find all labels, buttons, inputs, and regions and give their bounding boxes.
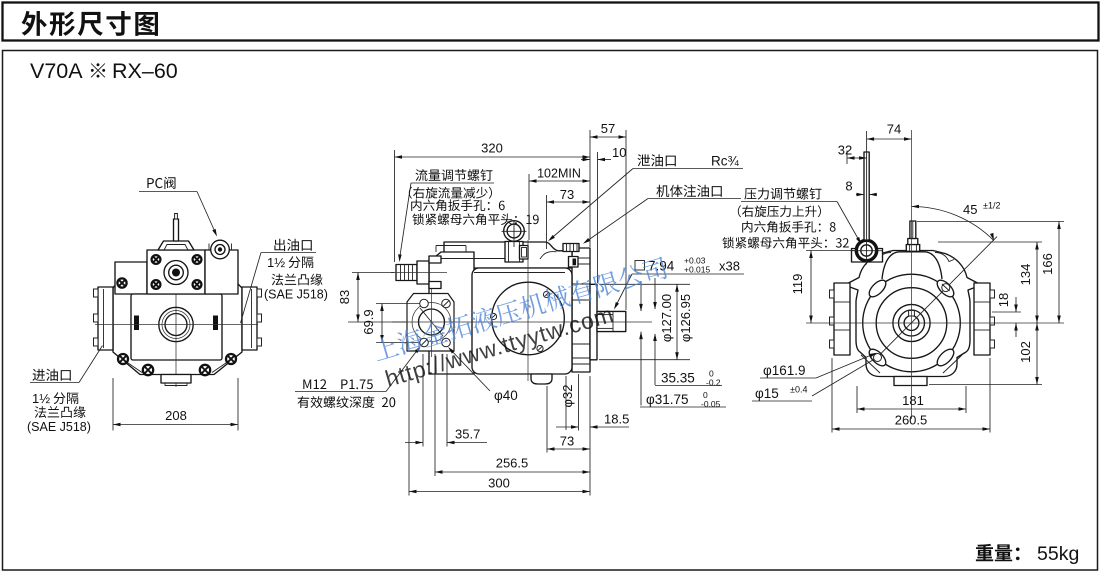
svg-text:320: 320 [481, 141, 503, 156]
svg-text:74: 74 [887, 122, 901, 137]
svg-text:±1/2: ±1/2 [983, 201, 1000, 211]
svg-text:57: 57 [601, 121, 615, 136]
svg-text:-0.2: -0.2 [706, 378, 721, 388]
svg-text:10: 10 [612, 145, 626, 160]
svg-text:φ40: φ40 [494, 388, 518, 403]
svg-text:18.5: 18.5 [604, 412, 629, 427]
svg-text:(SAE J518): (SAE J518) [27, 420, 91, 434]
svg-text:φ31.75: φ31.75 [646, 392, 689, 407]
svg-text:208: 208 [165, 408, 187, 423]
svg-text:83: 83 [337, 290, 352, 304]
svg-text:35.35: 35.35 [661, 371, 695, 386]
svg-text:55kg: 55kg [1037, 543, 1079, 565]
svg-text:73: 73 [560, 187, 574, 202]
svg-text:73: 73 [560, 434, 574, 449]
svg-text:φ161.9: φ161.9 [763, 363, 806, 378]
svg-text:69.9: 69.9 [361, 309, 376, 334]
svg-text:300: 300 [488, 476, 510, 491]
svg-text:x38: x38 [719, 259, 740, 274]
svg-text:φ127.00: φ127.00 [659, 294, 674, 342]
svg-text:119: 119 [790, 274, 805, 295]
svg-text:(SAE J518): (SAE J518) [264, 288, 328, 302]
svg-text:V70A: V70A [30, 59, 83, 83]
svg-text:166: 166 [1040, 253, 1055, 275]
svg-text:RX–60: RX–60 [112, 59, 178, 83]
svg-text:256.5: 256.5 [496, 456, 529, 471]
svg-text:+0.015: +0.015 [684, 265, 711, 275]
svg-text:-0.05: -0.05 [701, 399, 721, 409]
svg-text:181: 181 [902, 393, 924, 408]
svg-text:134: 134 [1018, 264, 1033, 286]
svg-text:φ32: φ32 [560, 385, 575, 408]
svg-text:35.7: 35.7 [455, 427, 480, 442]
svg-text:1½: 1½ [32, 391, 50, 406]
svg-text:260.5: 260.5 [895, 413, 928, 428]
svg-text:8: 8 [845, 179, 852, 194]
svg-text:±0.4: ±0.4 [790, 385, 807, 395]
svg-text:102: 102 [1018, 341, 1033, 363]
svg-text:φ15: φ15 [755, 386, 779, 401]
svg-text:102MIN: 102MIN [537, 167, 581, 181]
svg-text:Rc¾: Rc¾ [711, 154, 739, 169]
svg-text:1½: 1½ [267, 255, 285, 270]
svg-text:φ126.95: φ126.95 [678, 294, 693, 342]
svg-text:45: 45 [963, 202, 977, 217]
svg-text:18: 18 [996, 293, 1011, 307]
svg-text:32: 32 [838, 143, 852, 158]
